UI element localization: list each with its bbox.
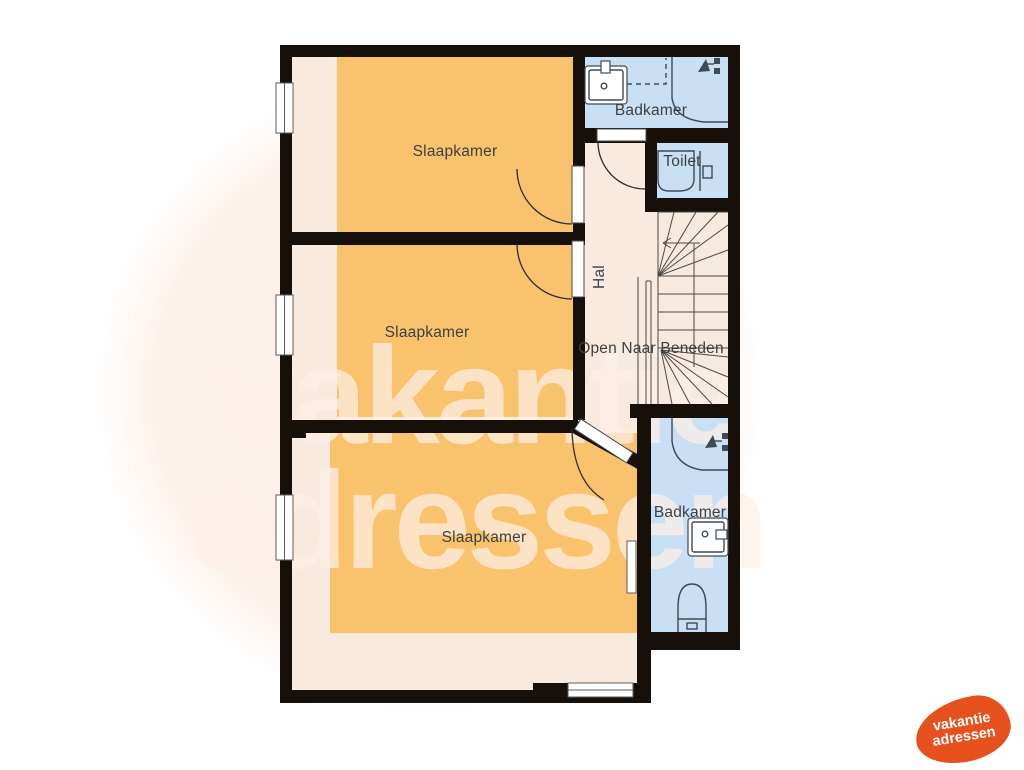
bathroom-bottom-label: Badkamer bbox=[654, 504, 726, 521]
bedroom-middle-label: Slaapkamer bbox=[385, 324, 470, 341]
bathroom-top-label: Badkamer bbox=[615, 102, 687, 119]
bedroom-top-label: Slaapkamer bbox=[413, 143, 498, 160]
bedroom-bottom-label: Slaapkamer bbox=[442, 529, 527, 546]
sink-icon bbox=[688, 518, 728, 556]
window-symbol bbox=[568, 683, 633, 697]
window-symbol bbox=[276, 295, 293, 355]
hall-label: Hal bbox=[591, 265, 608, 289]
radiator-symbol bbox=[627, 541, 636, 593]
window-symbol bbox=[276, 83, 293, 133]
sink-icon bbox=[585, 61, 627, 104]
stairs-open-below-label: Open Naar Beneden bbox=[578, 340, 724, 357]
logo-text: vakantie adressen bbox=[911, 691, 1016, 769]
floorplan-image: vakantie adressen bbox=[0, 0, 1024, 768]
vakantieadressen-logo: vakantie adressen bbox=[915, 698, 1011, 762]
window-symbol bbox=[276, 495, 293, 560]
toilet-label: Toilet bbox=[663, 153, 701, 170]
